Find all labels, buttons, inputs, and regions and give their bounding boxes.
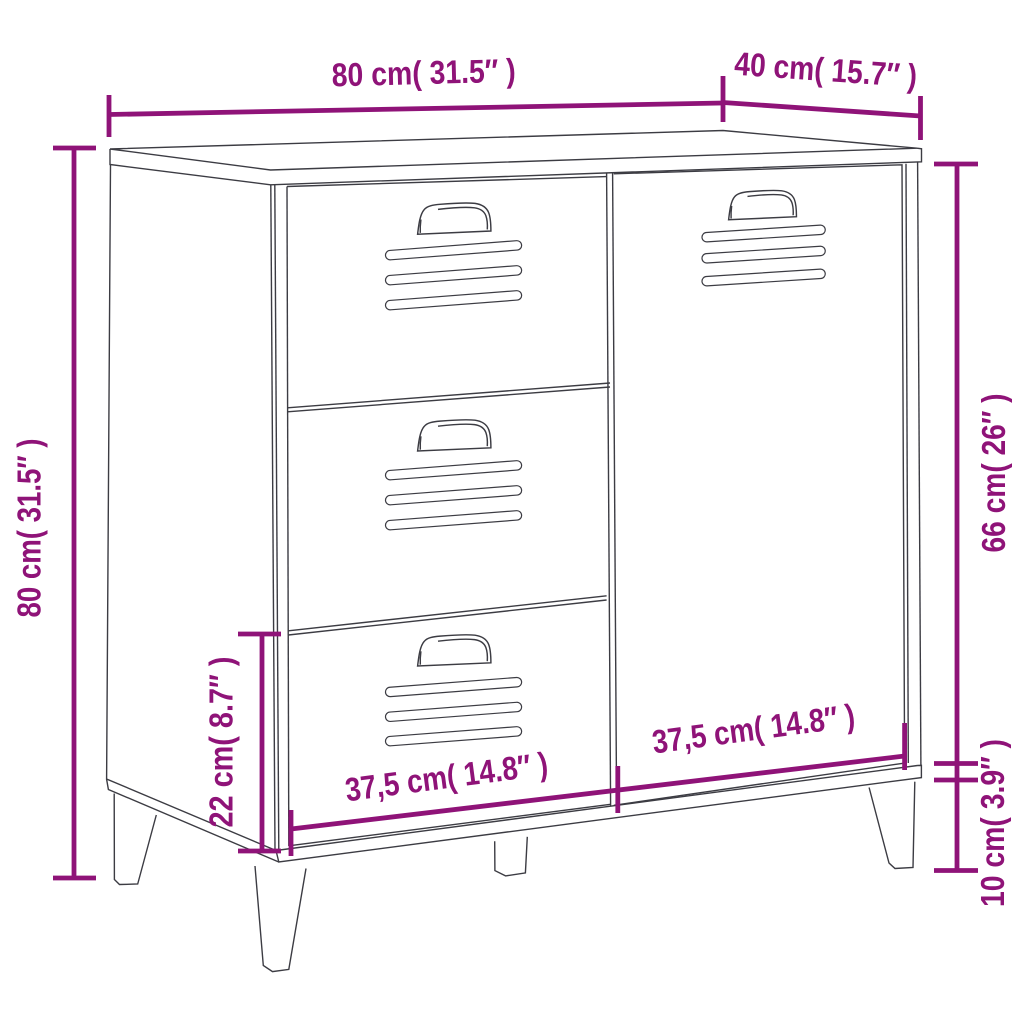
svg-text:66 cm( 26″ ): 66 cm( 26″ ) [975, 394, 1012, 553]
svg-text:80 cm( 31.5″ ): 80 cm( 31.5″ ) [11, 439, 48, 618]
svg-text:10 cm( 3.9″ ): 10 cm( 3.9″ ) [974, 739, 1011, 907]
svg-text:40 cm( 15.7″ ): 40 cm( 15.7″ ) [733, 45, 918, 95]
svg-text:37,5 cm( 14.8″ ): 37,5 cm( 14.8″ ) [343, 745, 550, 808]
svg-text:80 cm( 31.5″ ): 80 cm( 31.5″ ) [331, 52, 516, 94]
svg-text:22 cm( 8.7″ ): 22 cm( 8.7″ ) [203, 657, 240, 828]
svg-text:37,5 cm( 14.8″ ): 37,5 cm( 14.8″ ) [650, 697, 857, 761]
